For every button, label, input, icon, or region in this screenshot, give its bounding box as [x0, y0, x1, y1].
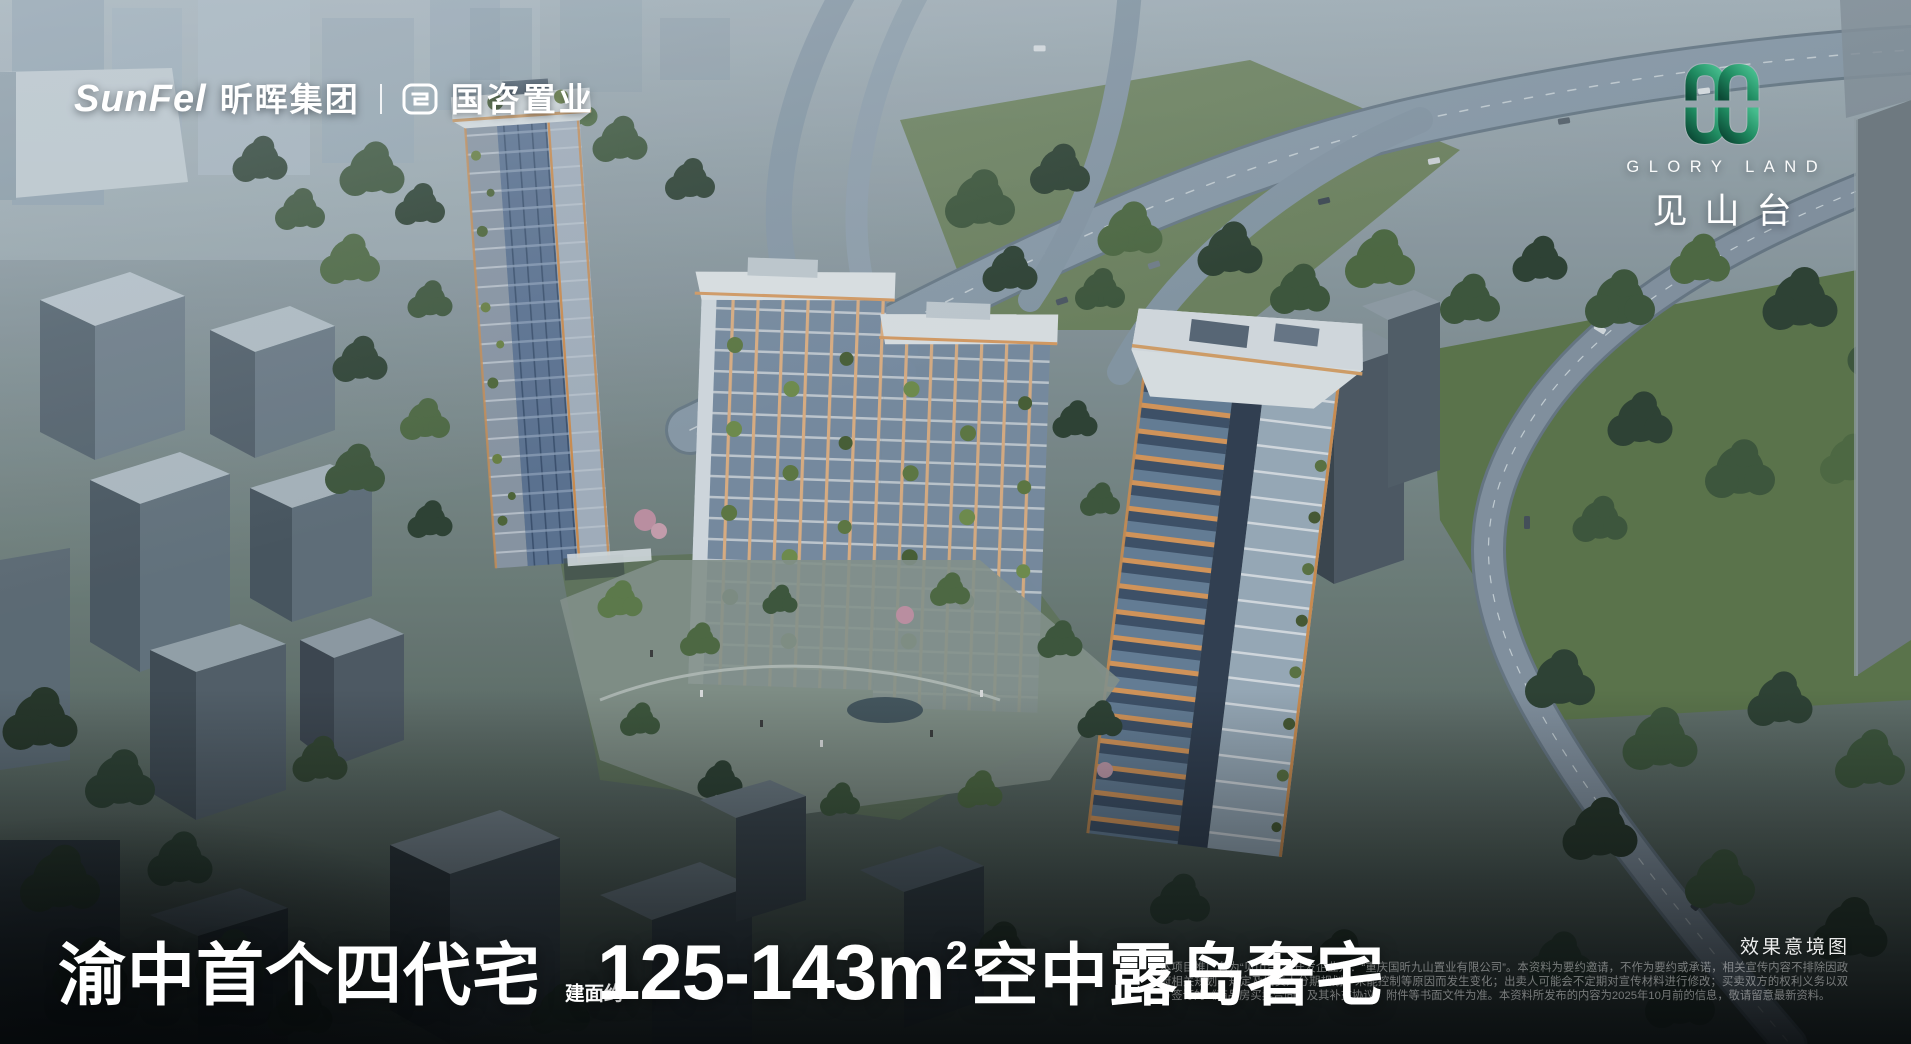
brand-divider: [380, 84, 382, 114]
poster-canvas: SunFel 昕晖集团 国咨置业: [0, 0, 1911, 1044]
area-label: 建面约: [565, 984, 587, 1005]
project-badge: GLORY LAND 见山台: [1594, 58, 1850, 234]
disclaimer-text: 本项目推广名为“见山台”；开发企业为：“重庆国昕九山置业有限公司”。本资料为要约…: [1160, 961, 1848, 1003]
project-name-latin: GLORY LAND: [1594, 158, 1850, 177]
area-value: 125-143m: [597, 933, 945, 1011]
project-name-cn: 见山台: [1594, 183, 1850, 234]
sunfel-group-label: 昕晖集团: [220, 83, 360, 116]
glory-land-monogram-icon: [1679, 58, 1765, 150]
guozi-label: 国咨置业: [451, 83, 595, 116]
guozi-seal-icon: [402, 83, 438, 115]
headline-prefix: 渝中首个四代宅: [58, 942, 541, 1010]
area-superscript: 2: [946, 934, 968, 979]
render-note: 效果意境图: [1740, 932, 1850, 959]
brand-bar: SunFel 昕晖集团 国咨置业: [74, 80, 595, 118]
sunfel-wordmark: SunFel: [74, 80, 207, 118]
